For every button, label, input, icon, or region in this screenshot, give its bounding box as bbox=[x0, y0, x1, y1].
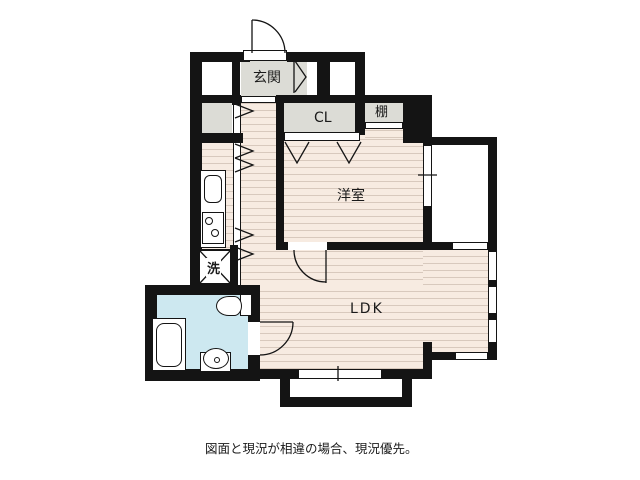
wall-segment bbox=[488, 313, 497, 320]
wall-segment bbox=[276, 98, 284, 250]
wall-segment bbox=[423, 137, 497, 145]
ldk-label: LDK bbox=[350, 301, 384, 317]
washbasin-drain bbox=[214, 357, 220, 363]
western-room-label: 洋室 bbox=[337, 185, 365, 205]
wall-segment bbox=[145, 285, 238, 295]
wall-segment bbox=[488, 280, 497, 287]
entrance-threshold bbox=[243, 50, 287, 61]
closet-sliding-door bbox=[284, 132, 360, 141]
corner-window bbox=[455, 352, 488, 360]
ldk-side-window bbox=[488, 287, 497, 313]
wall-segment bbox=[432, 352, 455, 360]
wall-segment bbox=[190, 133, 243, 143]
storage-area bbox=[202, 103, 232, 133]
closet-label: CL bbox=[314, 110, 332, 126]
wall-segment bbox=[488, 342, 497, 360]
wall-segment bbox=[488, 137, 497, 252]
ldk-floor-right bbox=[423, 250, 488, 352]
floor-plan: 玄関 CL 棚 洋室 LDK 洗 図面と現況が相違の場合、現況優先。 bbox=[0, 0, 640, 480]
wall-segment bbox=[327, 242, 452, 250]
caption: 図面と現況が相違の場合、現況優先。 bbox=[205, 438, 418, 457]
balcony-wall bbox=[402, 377, 412, 407]
wall-segment bbox=[276, 242, 288, 250]
wall-segment bbox=[190, 95, 241, 103]
stove-burner bbox=[205, 217, 213, 225]
bathtub-inner bbox=[156, 323, 182, 367]
kitchen-sink bbox=[204, 175, 222, 203]
toilet-bowl bbox=[216, 296, 242, 316]
pipe-space bbox=[403, 95, 432, 143]
wall-segment bbox=[355, 95, 365, 135]
shelf-label: 棚 bbox=[375, 101, 388, 120]
entrance-door-arc bbox=[252, 20, 285, 53]
stove-burner bbox=[211, 229, 219, 237]
ldk-bottom-window bbox=[298, 369, 382, 379]
wall-segment bbox=[248, 355, 260, 371]
washer-label: 洗 bbox=[206, 258, 221, 277]
shelf-edge bbox=[365, 122, 403, 129]
ldk-side-window bbox=[488, 252, 497, 280]
balcony-opening bbox=[452, 242, 488, 250]
door-gap bbox=[288, 242, 327, 250]
wall-segment bbox=[317, 58, 330, 98]
western-room-window bbox=[423, 145, 432, 207]
western-room-floor bbox=[284, 126, 423, 242]
stove bbox=[202, 212, 224, 244]
balcony-wall bbox=[280, 397, 412, 407]
entrance-label: 玄関 bbox=[253, 67, 281, 87]
ldk-floor-lower bbox=[260, 285, 423, 369]
entrance-step bbox=[241, 96, 276, 103]
ldk-side-window bbox=[488, 320, 497, 342]
